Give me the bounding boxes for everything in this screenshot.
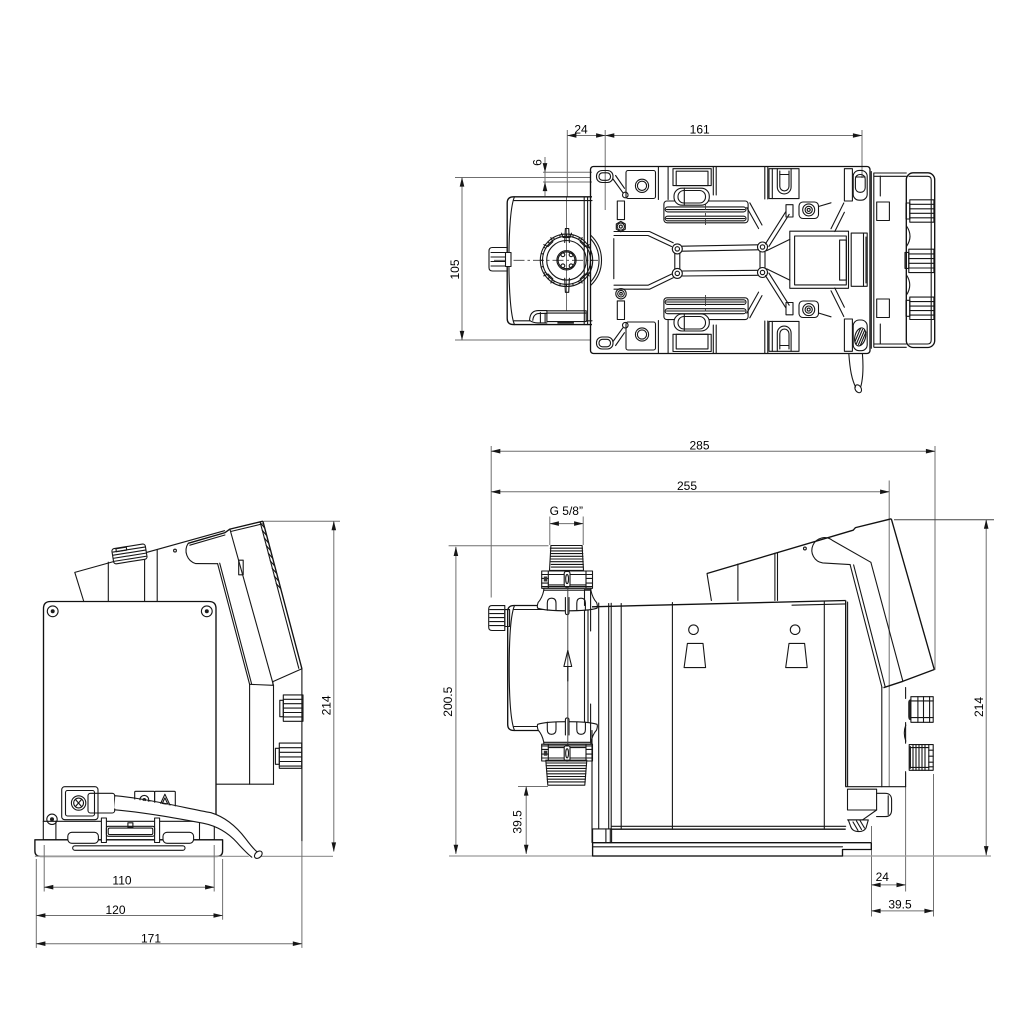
svg-text:214: 214 [972, 697, 986, 717]
svg-text:171: 171 [141, 931, 161, 945]
svg-text:24: 24 [876, 870, 890, 884]
svg-text:161: 161 [690, 122, 710, 136]
svg-text:285: 285 [689, 438, 709, 452]
svg-text:110: 110 [112, 874, 131, 888]
svg-text:24: 24 [574, 122, 588, 136]
svg-text:6: 6 [530, 159, 544, 166]
svg-text:255: 255 [677, 479, 697, 493]
svg-text:105: 105 [448, 259, 462, 279]
svg-text:120: 120 [105, 903, 125, 917]
svg-text:39.5: 39.5 [511, 810, 525, 834]
svg-text:39.5: 39.5 [888, 898, 912, 912]
svg-text:G 5/8”: G 5/8” [550, 504, 583, 518]
svg-text:200.5: 200.5 [441, 686, 455, 716]
svg-text:214: 214 [319, 695, 333, 715]
